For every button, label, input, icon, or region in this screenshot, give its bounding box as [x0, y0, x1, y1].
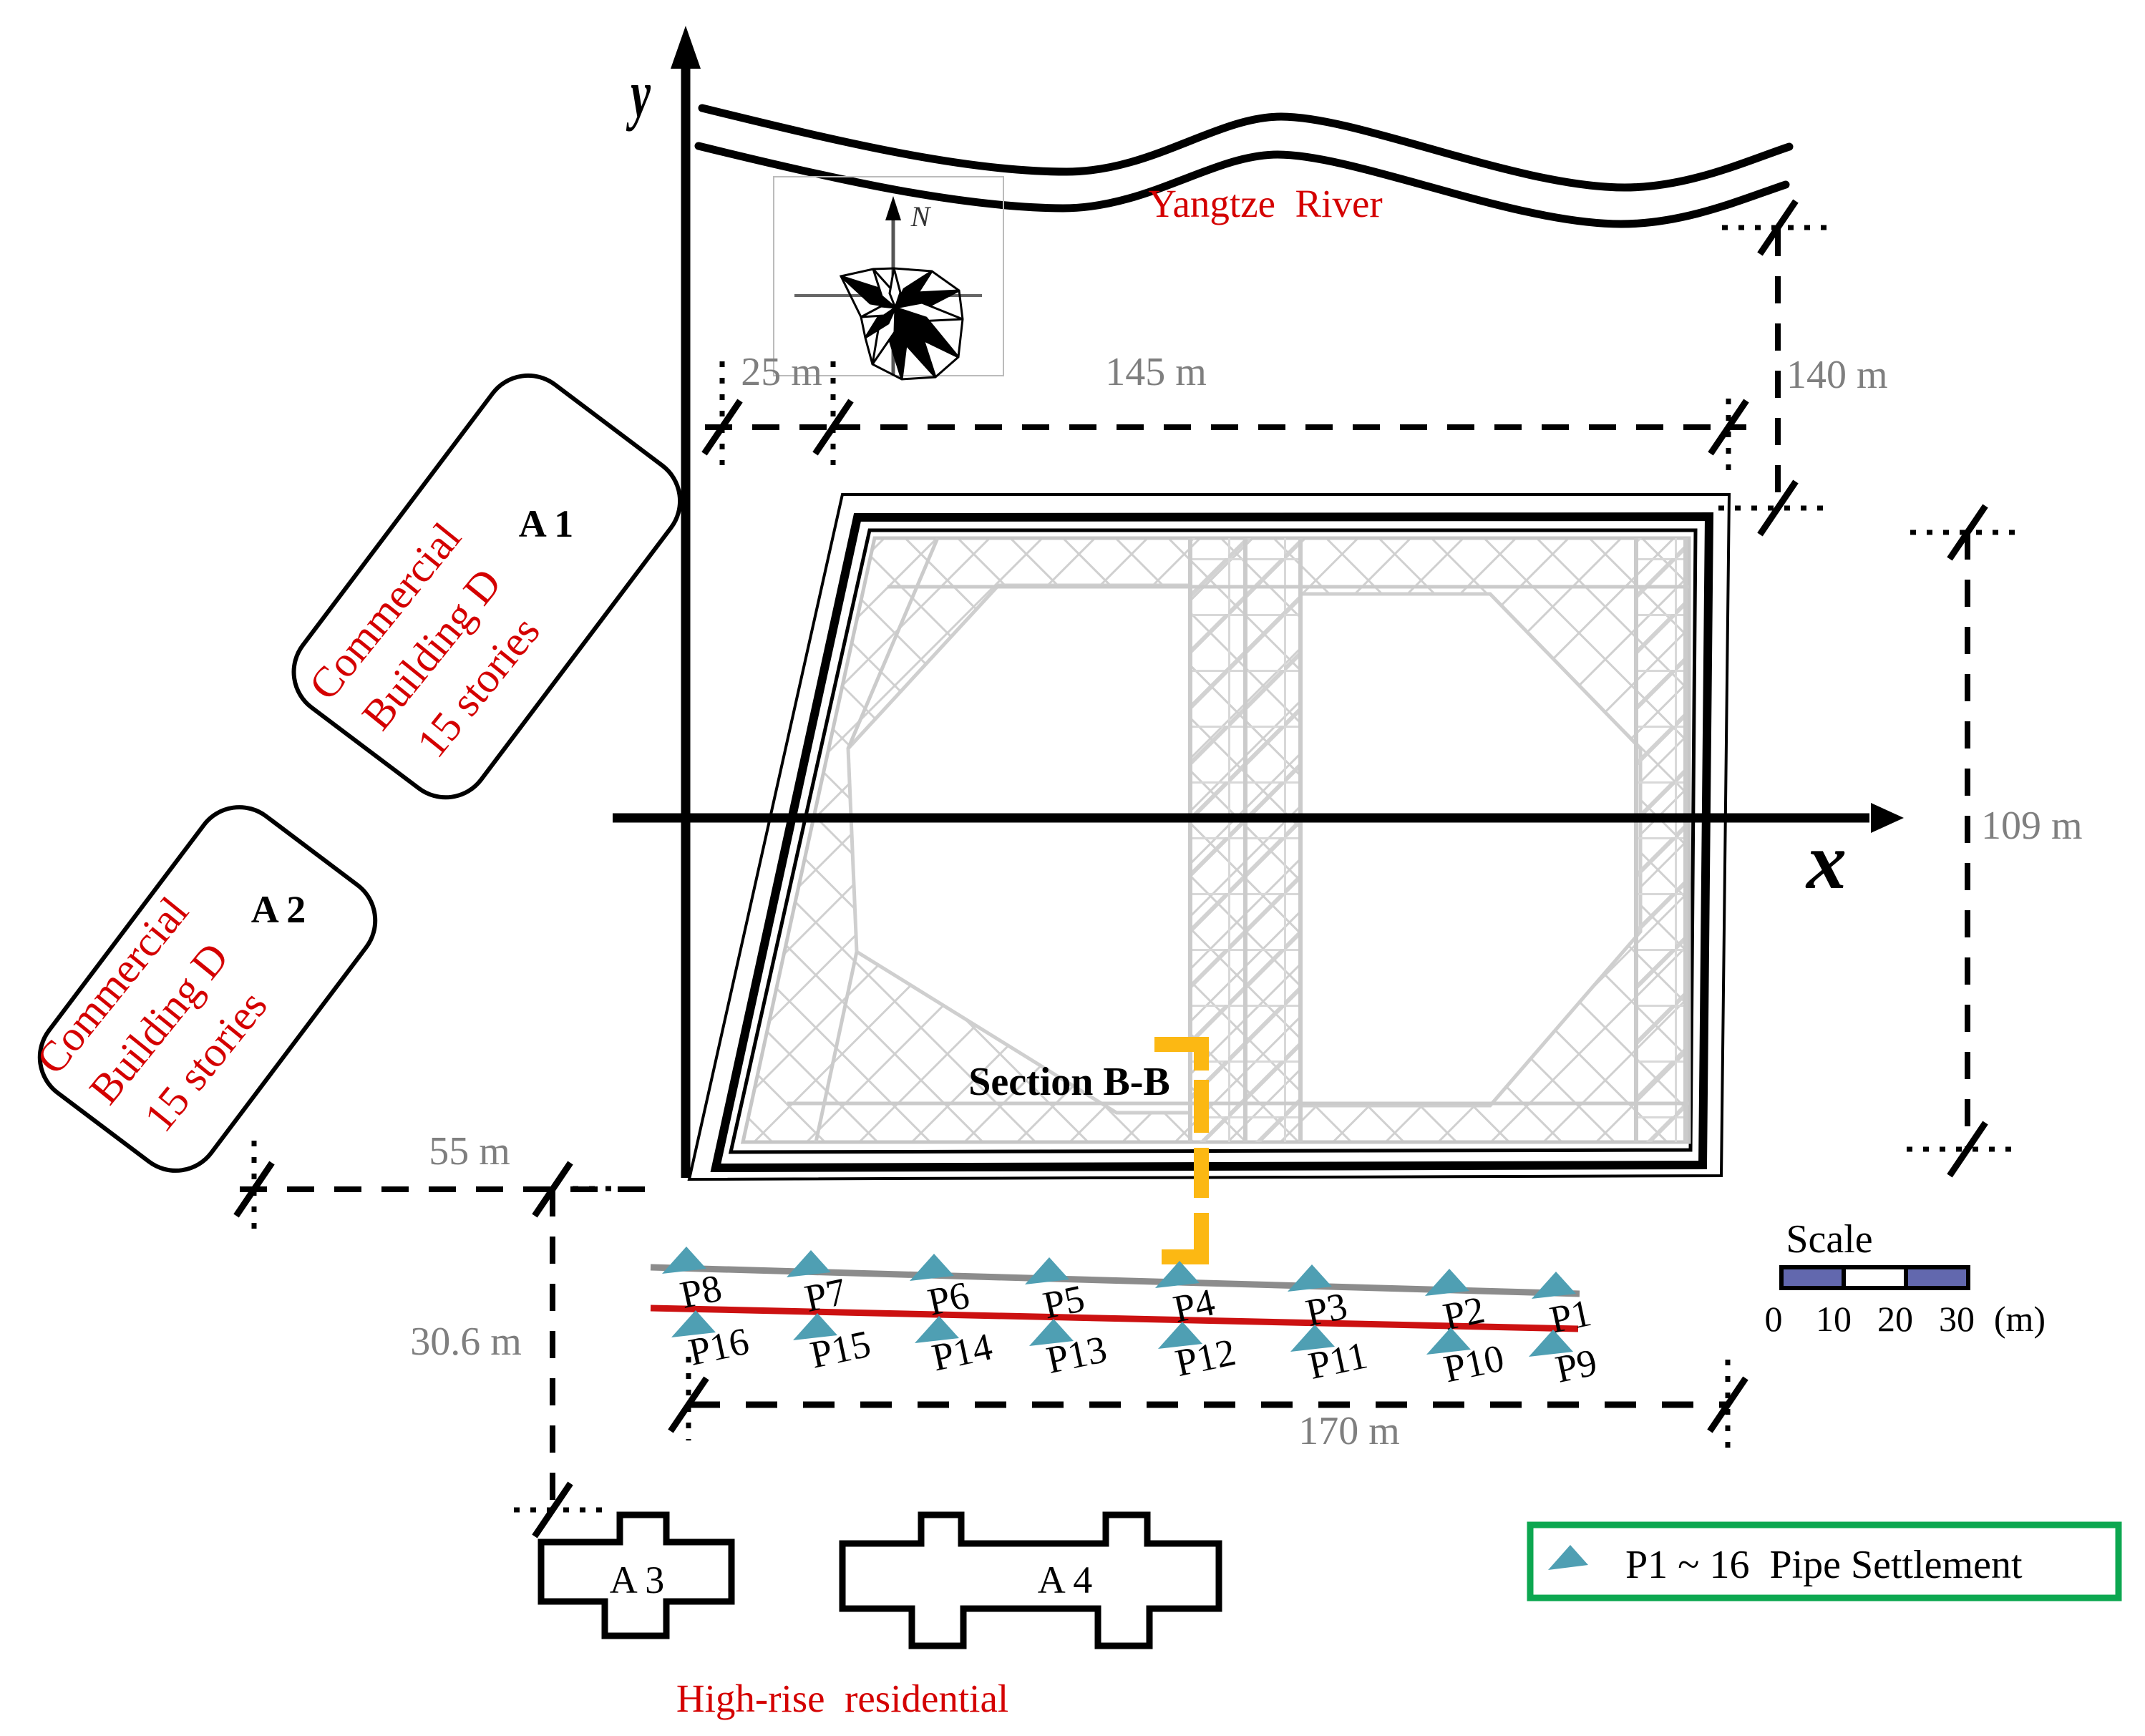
svg-text:A 4: A 4 — [1038, 1559, 1093, 1601]
svg-text:P2: P2 — [1439, 1288, 1488, 1339]
svg-text:A 2: A 2 — [251, 888, 306, 931]
svg-text:P7: P7 — [801, 1269, 850, 1320]
svg-text:P9: P9 — [1552, 1340, 1600, 1391]
svg-text:A 3: A 3 — [610, 1559, 665, 1601]
svg-text:(m): (m) — [1994, 1299, 2046, 1339]
svg-text:140 m: 140 m — [1786, 353, 1888, 397]
svg-text:0: 0 — [1765, 1299, 1783, 1339]
svg-text:P4: P4 — [1169, 1280, 1218, 1331]
svg-text:Yangtze River: Yangtze River — [1148, 182, 1382, 225]
svg-text:30: 30 — [1939, 1299, 1975, 1339]
svg-text:P5: P5 — [1039, 1277, 1088, 1327]
svg-text:55 m: 55 m — [429, 1129, 510, 1174]
svg-text:25 m: 25 m — [741, 350, 822, 394]
svg-text:109 m: 109 m — [1981, 804, 2083, 848]
svg-text:10: 10 — [1816, 1299, 1852, 1339]
svg-text:A 1: A 1 — [519, 502, 574, 545]
svg-text:x: x — [1805, 817, 1847, 906]
svg-text:20: 20 — [1877, 1299, 1913, 1339]
svg-text:Scale: Scale — [1786, 1217, 1872, 1262]
svg-text:P6: P6 — [924, 1273, 973, 1324]
svg-text:145 m: 145 m — [1105, 350, 1207, 394]
svg-text:P1 ~ 16 Pipe Settlement: P1 ~ 16 Pipe Settlement — [1625, 1543, 2023, 1587]
svg-text:Section B-B: Section B-B — [968, 1060, 1170, 1104]
svg-text:High-rise residential: High-rise residential — [676, 1677, 1008, 1720]
svg-text:30.6 m: 30.6 m — [410, 1320, 522, 1364]
svg-text:P8: P8 — [676, 1266, 725, 1317]
svg-text:170 m: 170 m — [1298, 1409, 1400, 1453]
svg-text:N: N — [910, 200, 932, 233]
svg-text:P3: P3 — [1302, 1284, 1351, 1335]
